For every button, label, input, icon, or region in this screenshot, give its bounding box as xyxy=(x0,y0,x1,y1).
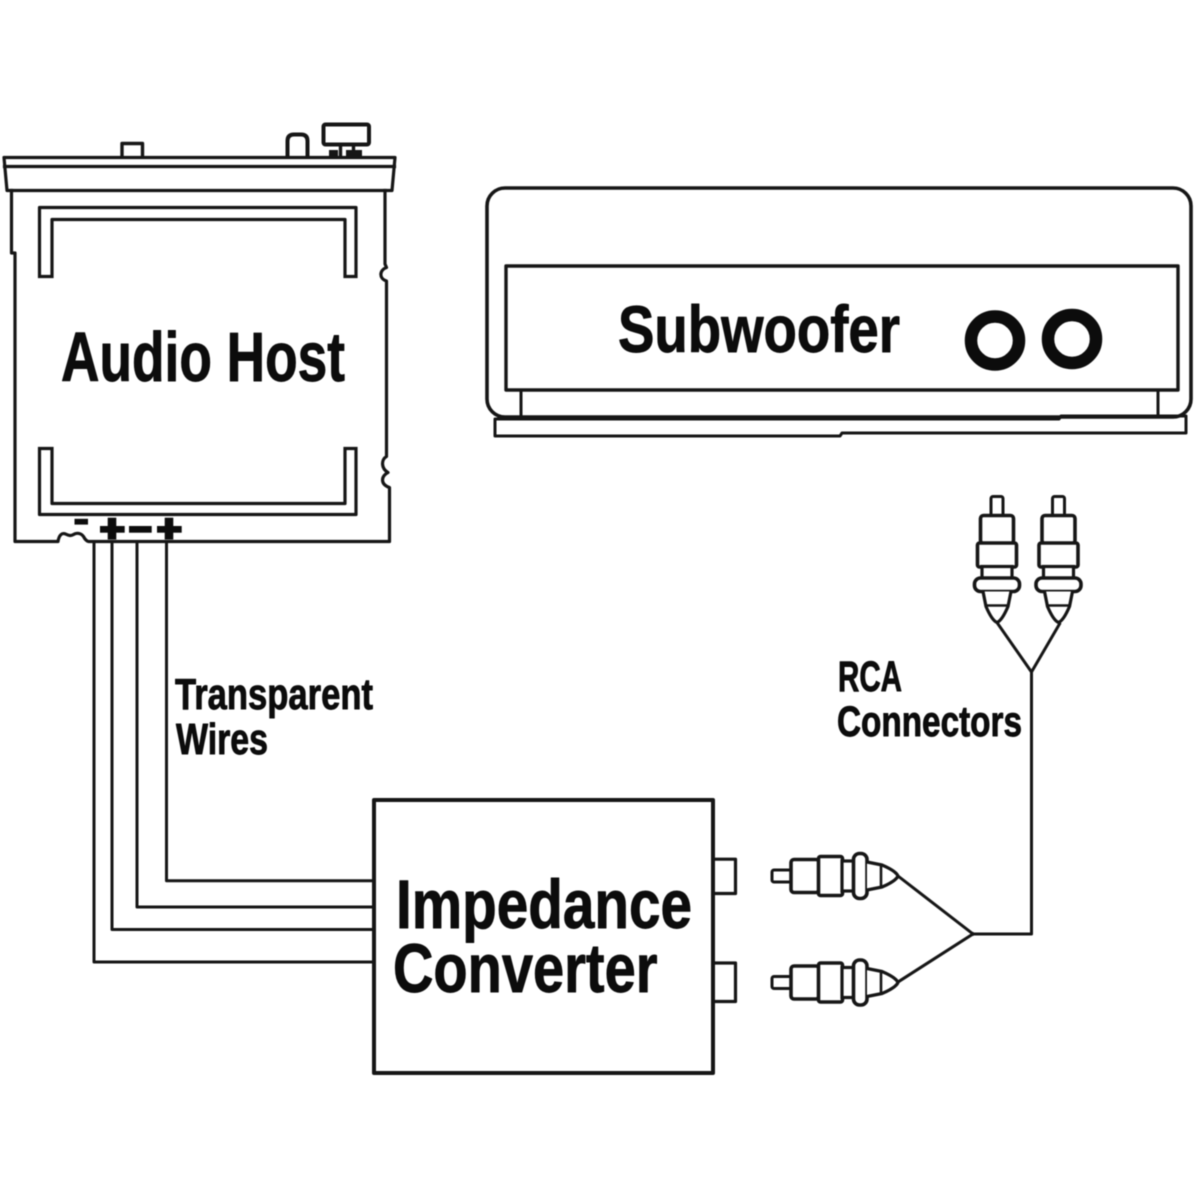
svg-text:Subwoofer: Subwoofer xyxy=(618,292,900,366)
svg-text:Wires: Wires xyxy=(176,715,268,764)
svg-text:Audio Host: Audio Host xyxy=(61,318,345,396)
svg-text:Connectors: Connectors xyxy=(837,698,1022,746)
svg-text:Converter: Converter xyxy=(393,930,658,1007)
svg-text:Transparent: Transparent xyxy=(175,670,373,719)
svg-text:RCA: RCA xyxy=(838,653,902,701)
